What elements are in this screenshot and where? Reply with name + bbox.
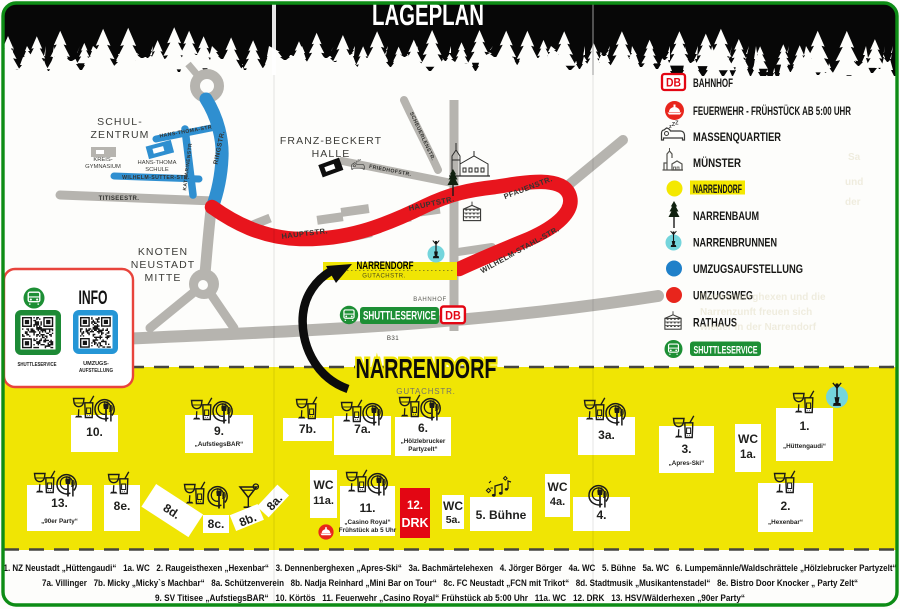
svg-text:Partyzelt“: Partyzelt“ [408, 446, 437, 453]
svg-text:ZENTRUM: ZENTRUM [90, 129, 149, 141]
svg-text:13.: 13. [51, 496, 68, 510]
svg-text:„90er Party“: „90er Party“ [41, 518, 78, 525]
svg-text:HANS-THOMA: HANS-THOMA [138, 160, 177, 166]
svg-text:DRK: DRK [401, 516, 428, 530]
svg-text:11a.: 11a. [313, 495, 334, 507]
svg-text:SHUTTLESERVICE: SHUTTLESERVICE [694, 345, 758, 357]
svg-text:1. NZ Neustadt „Hüttengaudi“: 1. NZ Neustadt „Hüttengaudi“ 1a. WC 2. R… [4, 563, 897, 573]
svg-text:NEUSTADT: NEUSTADT [131, 259, 196, 271]
svg-text:9.: 9. [214, 424, 224, 438]
svg-text:8c.: 8c. [208, 517, 225, 531]
svg-text:NARRENDORF: NARRENDORF [693, 182, 742, 196]
svg-text:11.: 11. [359, 501, 375, 515]
svg-text:GYMNASIUM: GYMNASIUM [85, 164, 121, 170]
svg-text:wieder in der Narrendorf: wieder in der Narrendorf [699, 322, 817, 333]
svg-text:HALLE: HALLE [312, 148, 351, 160]
svg-text:B31: B31 [387, 335, 399, 342]
svg-text:3a.: 3a. [598, 428, 615, 442]
svg-text:KNOTEN: KNOTEN [138, 246, 188, 258]
svg-text:Sa: Sa [848, 152, 861, 163]
svg-text:10.: 10. [86, 425, 103, 439]
svg-text:„Hölzlebrucker: „Hölzlebrucker [401, 438, 446, 445]
svg-text:„Hexenbar“: „Hexenbar“ [768, 519, 803, 526]
svg-text:NARRENBRUNNEN: NARRENBRUNNEN [693, 236, 777, 250]
svg-text:NARRENBAUM: NARRENBAUM [693, 209, 759, 223]
svg-text:Frühstück ab 5 Uhr: Frühstück ab 5 Uhr [339, 527, 397, 534]
svg-text:WC: WC [314, 478, 334, 492]
svg-text:„Hüttengaudi“: „Hüttengaudi“ [783, 443, 826, 450]
svg-text:und: und [845, 177, 863, 188]
svg-text:WC: WC [548, 480, 568, 494]
svg-text:MITTE: MITTE [145, 272, 182, 284]
svg-text:GUTACHSTR.: GUTACHSTR. [362, 274, 406, 280]
svg-text:FEUERWEHR - FRÜHSTÜCK AB 5:00: FEUERWEHR - FRÜHSTÜCK AB 5:00 UHR [693, 103, 851, 118]
svg-text:4a.: 4a. [550, 496, 565, 508]
svg-text:WC: WC [443, 499, 463, 513]
svg-text:7b.: 7b. [299, 422, 316, 436]
svg-text:„Casino Royal“: „Casino Royal“ [344, 519, 390, 526]
svg-text:2.: 2. [780, 499, 790, 513]
svg-text:WILHELM-SUTTER-STR.: WILHELM-SUTTER-STR. [122, 175, 190, 181]
svg-text:Narrenzunft freuen sich: Narrenzunft freuen sich [700, 307, 812, 318]
svg-text:UMZUGS-: UMZUGS- [83, 361, 109, 367]
svg-text:„AufstiegsBAR“: „AufstiegsBAR“ [195, 441, 244, 448]
svg-text:Dennenberghexen und die: Dennenberghexen und die [700, 292, 826, 303]
svg-text:„Apres-Ski“: „Apres-Ski“ [669, 460, 705, 467]
svg-text:FRANZ-BECKERT: FRANZ-BECKERT [280, 135, 382, 147]
svg-text:5. Bühne: 5. Bühne [476, 508, 527, 522]
svg-text:der: der [845, 197, 861, 208]
svg-text:MASSENQUARTIER: MASSENQUARTIER [693, 130, 781, 144]
svg-text:KREIS-: KREIS- [93, 157, 112, 163]
svg-text:1.: 1. [799, 419, 809, 433]
svg-text:NARRENDORF: NARRENDORF [356, 353, 497, 384]
svg-text:6.: 6. [418, 421, 428, 435]
svg-text:BAHNHOF: BAHNHOF [413, 297, 447, 303]
svg-text:SHUTTLESERVICE: SHUTTLESERVICE [18, 362, 57, 368]
svg-text:GUTACHSTR.: GUTACHSTR. [396, 387, 455, 396]
svg-text:7a.: 7a. [354, 422, 371, 436]
svg-text:8e.: 8e. [114, 499, 131, 513]
svg-text:3.: 3. [681, 442, 691, 456]
svg-text:AUFSTELLUNG: AUFSTELLUNG [79, 368, 113, 374]
svg-text:12.: 12. [407, 500, 423, 512]
svg-text:INFO: INFO [79, 288, 108, 309]
svg-text:LAGEPLAN: LAGEPLAN [372, 0, 484, 32]
svg-text:MÜNSTER: MÜNSTER [693, 155, 741, 170]
svg-text:1a.: 1a. [740, 449, 756, 461]
svg-text:UMZUGSAUFSTELLUNG: UMZUGSAUFSTELLUNG [693, 262, 803, 276]
svg-text:7a. Villinger 7b. Micky „Mic: 7a. Villinger 7b. Micky „Micky`s Machbar… [42, 578, 858, 588]
svg-text:SCHUL-: SCHUL- [97, 116, 143, 128]
svg-text:BAHNHOF: BAHNHOF [693, 76, 733, 90]
svg-text:9. SV Titisee „AufstiegsBAR“: 9. SV Titisee „AufstiegsBAR“ 10. Körtös … [155, 593, 745, 603]
svg-text:TITISEESTR.: TITISEESTR. [99, 196, 140, 202]
svg-text:SHUTTLESERVICE: SHUTTLESERVICE [363, 309, 436, 323]
svg-text:4.: 4. [596, 508, 606, 522]
svg-text:SCHULE: SCHULE [145, 167, 169, 173]
svg-text:5a.: 5a. [446, 514, 461, 526]
svg-text:NARRENDORF: NARRENDORF [357, 260, 414, 272]
svg-text:WC: WC [738, 432, 758, 446]
